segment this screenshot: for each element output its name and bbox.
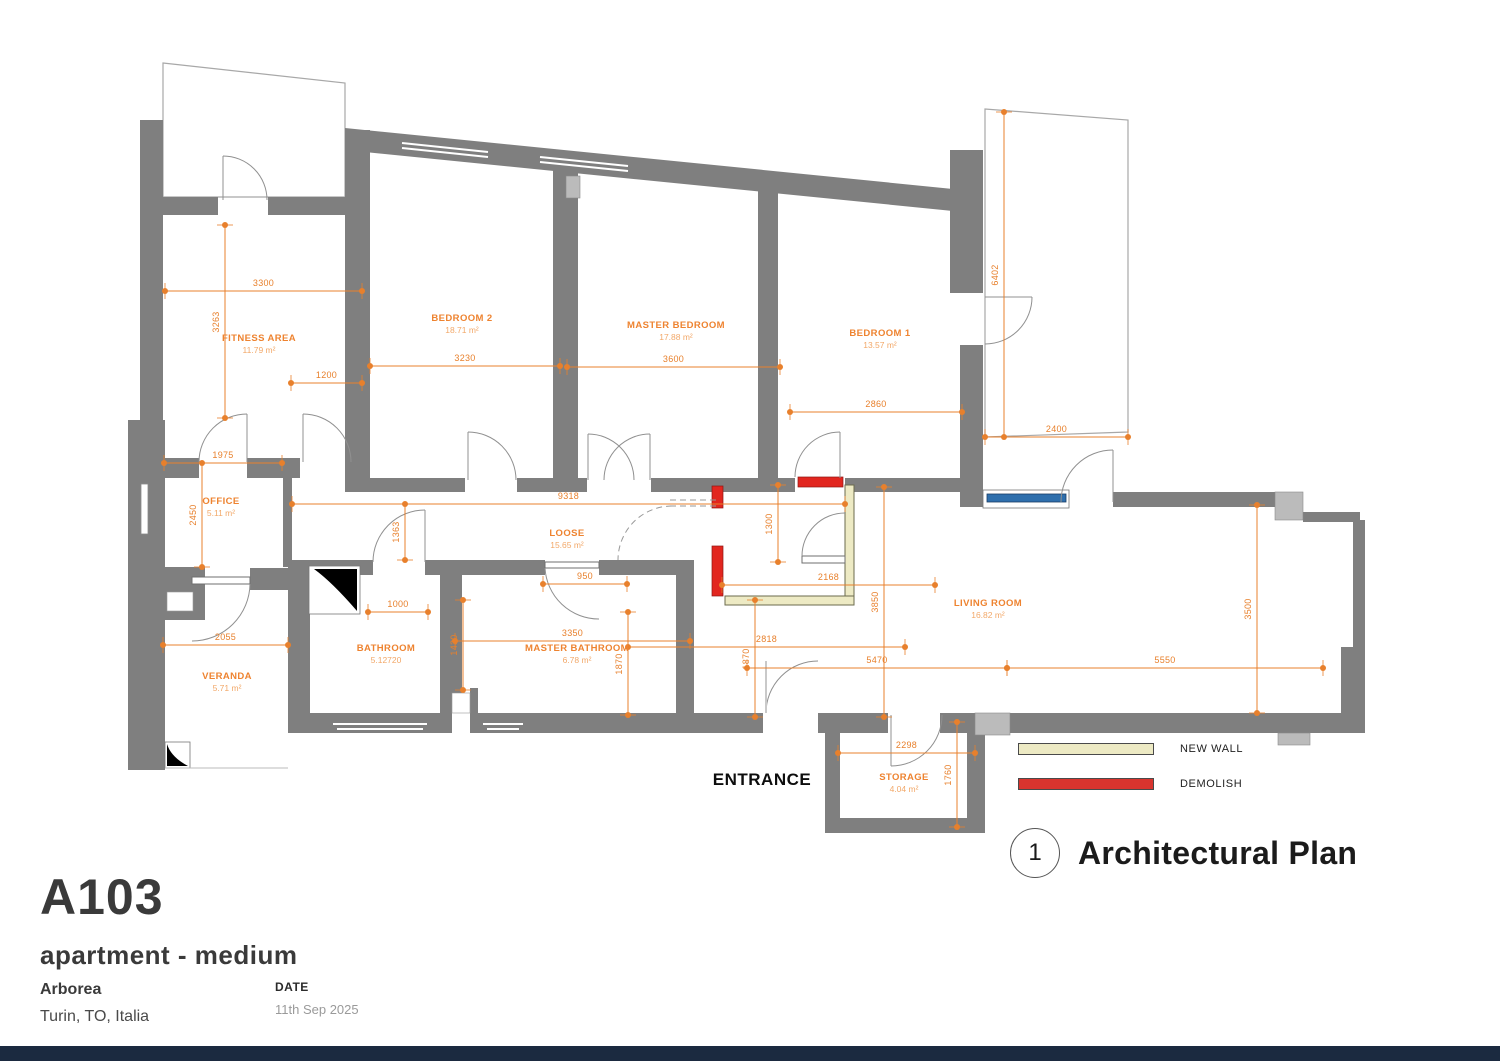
balcony-outlines [163,63,1128,437]
new-wall-segments [725,485,854,605]
walls [128,120,1365,833]
architectural-drawing-sheet: ENTRANCE NEW WALL DEMOLISH 1 Architectur… [0,0,1500,1061]
wall-notch [452,693,470,713]
blue-window [987,494,1066,502]
alcove-notch [167,592,193,611]
floor-plan-drawing [0,0,1500,1061]
